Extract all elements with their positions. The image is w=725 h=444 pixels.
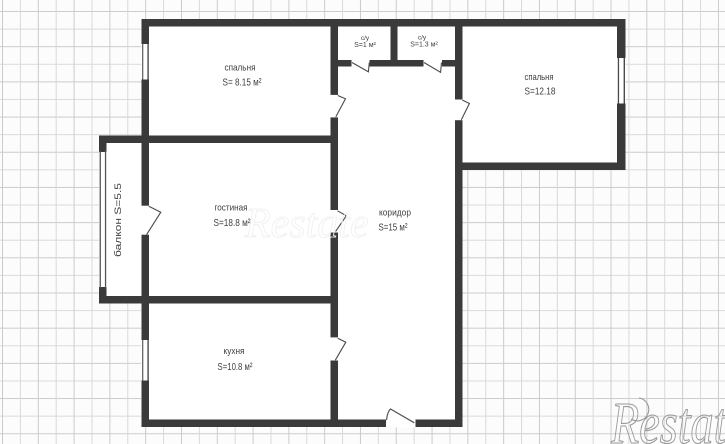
svg-text:балкон S=5.5: балкон S=5.5 bbox=[113, 183, 123, 257]
svg-text:S=1.3 м²: S=1.3 м² bbox=[410, 42, 438, 49]
svg-text:S=10.8 м²: S=10.8 м² bbox=[218, 362, 254, 373]
svg-text:S=1 м²: S=1 м² bbox=[354, 42, 376, 49]
svg-text:кухня: кухня bbox=[224, 346, 245, 357]
svg-text:с/у: с/у bbox=[418, 35, 427, 42]
svg-text:S=15 м²: S=15 м² bbox=[379, 223, 409, 234]
svg-text:S=12.18: S=12.18 bbox=[525, 87, 556, 98]
svg-text:Restate: Restate bbox=[610, 390, 725, 444]
svg-text:Restate: Restate bbox=[244, 201, 369, 247]
svg-text:S= 8.15 м²: S= 8.15 м² bbox=[223, 78, 263, 89]
svg-text:спальня: спальня bbox=[225, 63, 256, 74]
svg-text:коридор: коридор bbox=[379, 208, 411, 219]
svg-text:спальня: спальня bbox=[525, 72, 554, 83]
svg-text:S=18.8 м²: S=18.8 м² bbox=[214, 218, 252, 229]
svg-text:гостиная: гостиная bbox=[215, 203, 248, 214]
svg-text:с/у: с/у bbox=[361, 35, 370, 42]
